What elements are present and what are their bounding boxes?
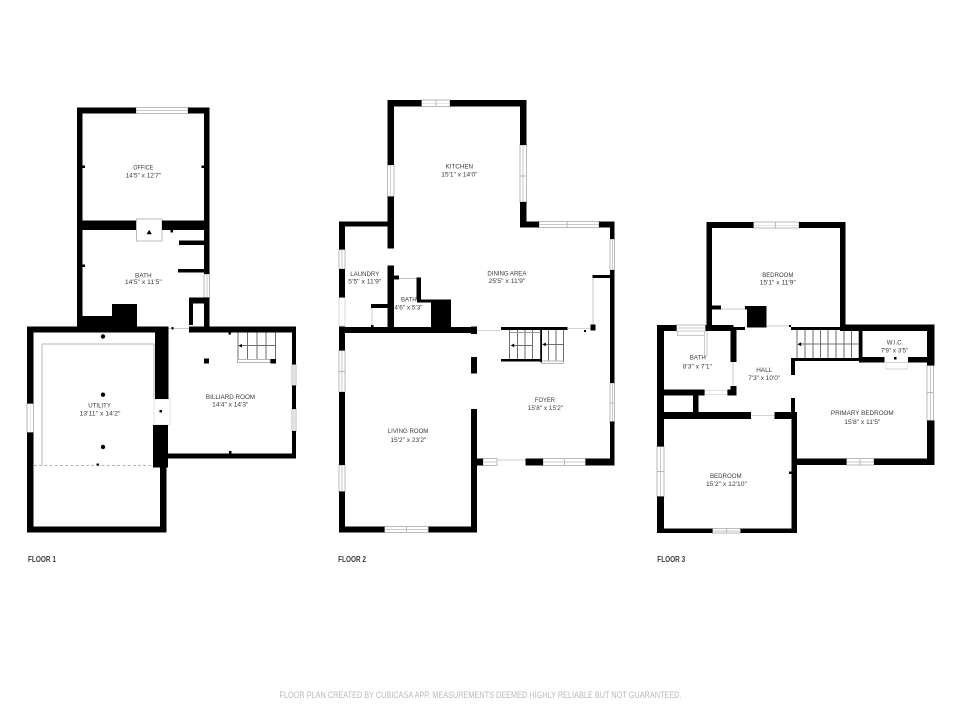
svg-text:FOYER: FOYER bbox=[535, 397, 555, 404]
svg-text:DINING AREA: DINING AREA bbox=[487, 271, 527, 278]
svg-text:4'6" x 5'3": 4'6" x 5'3" bbox=[394, 305, 423, 312]
svg-text:BEDROOM: BEDROOM bbox=[710, 473, 742, 480]
svg-text:14'4" x 14'3": 14'4" x 14'3" bbox=[212, 402, 249, 409]
svg-text:BATH: BATH bbox=[401, 296, 417, 303]
svg-text:15'1" x 14'0": 15'1" x 14'0" bbox=[441, 172, 478, 179]
svg-text:FLOOR 3: FLOOR 3 bbox=[657, 555, 685, 564]
svg-text:BATH: BATH bbox=[690, 354, 706, 361]
svg-text:FLOOR PLAN CREATED BY CUBICASA: FLOOR PLAN CREATED BY CUBICASA APP. MEAS… bbox=[280, 690, 682, 700]
svg-text:15'8" x 15'2": 15'8" x 15'2" bbox=[528, 405, 564, 412]
svg-text:14'5" x 11'5": 14'5" x 11'5" bbox=[125, 279, 163, 286]
svg-text:7'3" x 10'0": 7'3" x 10'0" bbox=[748, 375, 781, 382]
svg-text:15'1" x 11'9": 15'1" x 11'9" bbox=[760, 280, 797, 287]
svg-text:W.I.C.: W.I.C. bbox=[887, 340, 904, 347]
svg-text:FLOOR 1: FLOOR 1 bbox=[28, 555, 56, 564]
svg-text:BILLIARD ROOM: BILLIARD ROOM bbox=[206, 394, 255, 401]
svg-text:HALL: HALL bbox=[756, 367, 772, 374]
svg-text:7'9" x 3'5": 7'9" x 3'5" bbox=[881, 348, 909, 355]
svg-text:25'5" x 11'9": 25'5" x 11'9" bbox=[488, 278, 526, 285]
svg-text:FLOOR 2: FLOOR 2 bbox=[338, 555, 366, 564]
svg-text:BEDROOM: BEDROOM bbox=[762, 272, 793, 279]
svg-text:PRIMARY BEDROOM: PRIMARY BEDROOM bbox=[831, 410, 894, 417]
svg-text:LIVING ROOM: LIVING ROOM bbox=[388, 428, 429, 435]
svg-text:14'5" x 12'7": 14'5" x 12'7" bbox=[126, 173, 162, 180]
svg-text:15'2" x 12'10": 15'2" x 12'10" bbox=[706, 481, 748, 488]
svg-text:LAUNDRY: LAUNDRY bbox=[350, 271, 380, 278]
svg-text:OFFICE: OFFICE bbox=[133, 165, 153, 172]
svg-text:KITCHEN: KITCHEN bbox=[446, 164, 474, 171]
svg-text:5'5" x 11'9": 5'5" x 11'9" bbox=[348, 279, 382, 286]
svg-text:13'11" x 14'2": 13'11" x 14'2" bbox=[80, 410, 122, 417]
svg-text:8'3" x 7'1": 8'3" x 7'1" bbox=[683, 363, 713, 370]
svg-text:UTILITY: UTILITY bbox=[88, 403, 111, 410]
svg-text:15'2" x 23'2": 15'2" x 23'2" bbox=[390, 437, 427, 444]
svg-text:15'8" x 11'5": 15'8" x 11'5" bbox=[844, 419, 881, 426]
